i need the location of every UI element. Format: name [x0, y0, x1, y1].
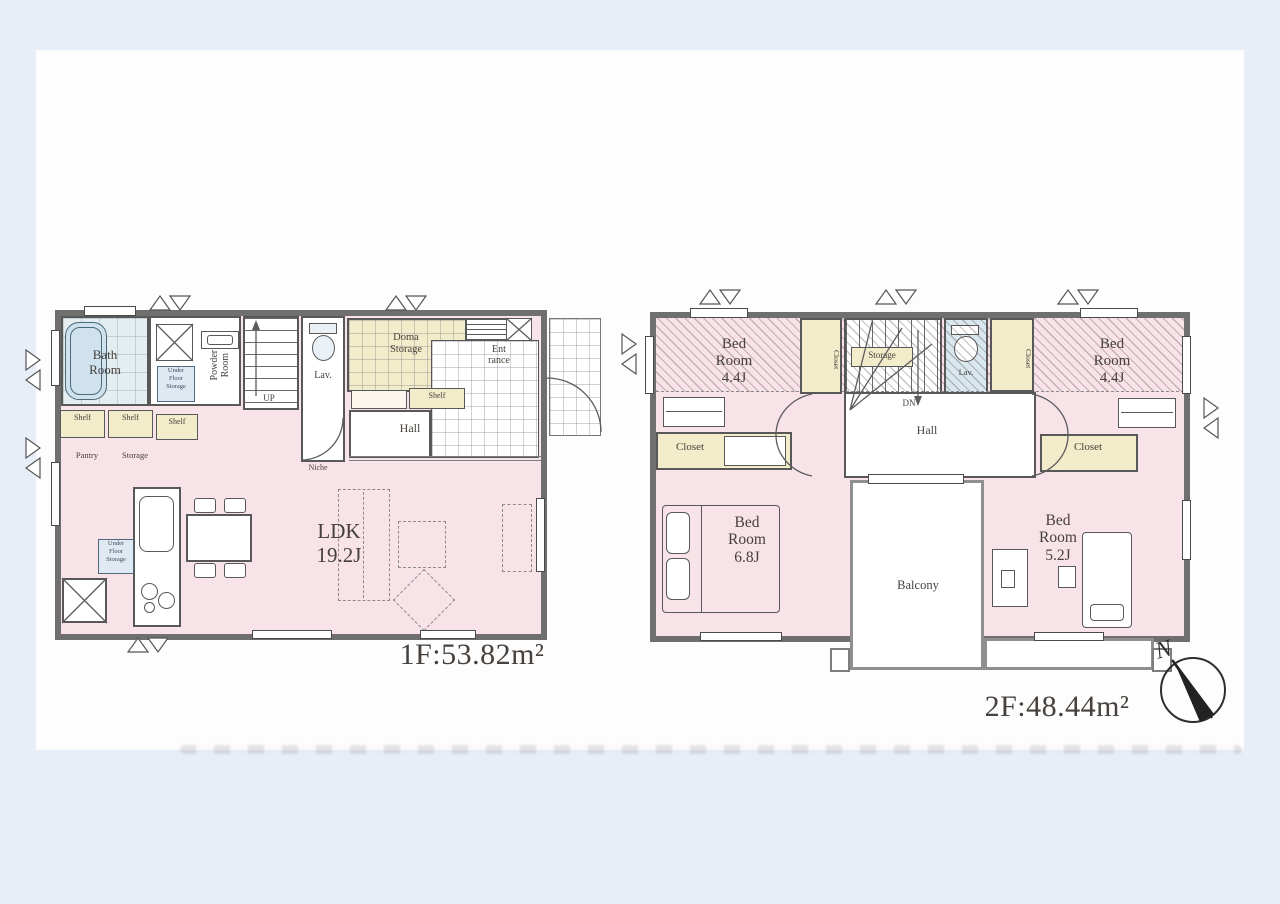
- stove-burner-1: [141, 583, 158, 600]
- shelf-box-2: Shelf: [108, 410, 153, 438]
- balcony-tab-left: [830, 648, 850, 672]
- cabinet-bedroom-tr: [1118, 398, 1176, 428]
- shoe-x-box: [506, 318, 532, 341]
- closet-room-left-label: Closet: [662, 441, 718, 453]
- side-table-br: [1058, 566, 1076, 588]
- desk-monitor: [1001, 570, 1015, 588]
- shelf-box-1: Shelf: [60, 410, 105, 438]
- pillow-2: [666, 558, 690, 600]
- lav-label-1f: Lav.: [303, 370, 343, 381]
- floor1-area-label: 1F:53.82m²: [382, 638, 562, 672]
- low-table-outline: [398, 521, 446, 568]
- balcony-deep: [850, 480, 984, 670]
- bath-room-label: Bath Room: [75, 348, 135, 377]
- balcony-strip: [984, 638, 1154, 670]
- window-1f-left-ldk: [51, 462, 60, 526]
- bedroom-tl-label: Bed Room 4.4J: [694, 336, 774, 386]
- porch: [549, 318, 601, 436]
- ldk-label: LDK 19.2J: [296, 520, 382, 567]
- hall-2f-label: Hall: [902, 424, 952, 437]
- corner-x-box: [62, 578, 107, 623]
- powder-room-label: Powder Room: [209, 335, 231, 395]
- bed-divider-line: [701, 506, 702, 612]
- closet-strip-right: Closet: [990, 318, 1034, 392]
- up-label: UP: [251, 393, 287, 403]
- under-floor-storage-powder: Under Floor Storage: [157, 366, 195, 402]
- toilet-tank-1f: [309, 323, 337, 334]
- balcony-label: Balcony: [886, 578, 950, 592]
- window-2f-bottom-br: [1034, 632, 1104, 641]
- sliding-door-hall-balcony: [868, 474, 964, 484]
- window-2f-left-tl: [645, 336, 654, 394]
- floor2-area-label: 2F:48.44m²: [962, 690, 1152, 724]
- pantry-label: Pantry: [66, 451, 108, 461]
- dining-table: [186, 514, 252, 562]
- tv-board-outline: [502, 504, 532, 572]
- shelf-label-1: Shelf: [61, 414, 104, 423]
- window-1f-bottom-1: [252, 630, 332, 639]
- cabinet-bedroom-tl: [663, 397, 725, 427]
- dining-chair-4: [224, 563, 246, 578]
- entrance-label: Ent rance: [462, 344, 536, 366]
- window-2f-top-left: [690, 308, 748, 318]
- niche-label: Niche: [296, 464, 340, 473]
- window-2f-right-br: [1182, 500, 1191, 560]
- scan-noise-streak: [180, 745, 1242, 754]
- balcony-tab-right: [1152, 648, 1172, 672]
- lav-label-2f: Lav.: [946, 368, 986, 378]
- bedroom-bl-label: Bed Room 6.8J: [708, 514, 786, 566]
- dining-chair-2: [224, 498, 246, 513]
- hall-step-line: [349, 456, 541, 461]
- shelf-label-3: Shelf: [157, 418, 197, 427]
- stove-burner-2: [158, 592, 175, 609]
- toilet-bowl-2f: [954, 336, 978, 362]
- bedroom-tr-label: Bed Room 4.4J: [1070, 336, 1154, 386]
- dining-chair-3: [194, 563, 216, 578]
- window-1f-left-bath: [51, 330, 60, 386]
- doma-storage-label: Doma Storage: [368, 332, 444, 356]
- window-2f-top-right: [1080, 308, 1138, 318]
- kitchen-sink: [139, 496, 174, 552]
- toilet-bowl-1f: [312, 335, 335, 361]
- cabinet-tr-line: [1121, 412, 1173, 413]
- washing-machine-pan: [156, 324, 193, 361]
- closet-room-right-label: Closet: [1056, 441, 1120, 453]
- window-2f-bottom-bl: [700, 632, 782, 641]
- dn-label: DN: [896, 398, 922, 408]
- window-1f-top-bath: [84, 306, 136, 316]
- under-floor-storage-kitchen: Under Floor Storage: [98, 539, 134, 574]
- window-2f-right-tr: [1182, 336, 1191, 394]
- dining-chair-1: [194, 498, 216, 513]
- shelf-under-doma-empty: [351, 390, 407, 409]
- storage-label-1f: Storage: [110, 451, 160, 461]
- stove-burner-3: [144, 602, 155, 613]
- shelf-label-2: Shelf: [109, 414, 152, 423]
- toilet-tank-2f: [951, 325, 979, 335]
- hall-1f-label: Hall: [385, 422, 435, 435]
- window-1f-right-ldk: [536, 498, 545, 572]
- shelf-box-3: Shelf: [156, 414, 198, 440]
- closet-left-inner: [724, 436, 786, 466]
- shelf-under-doma: Shelf: [409, 388, 465, 409]
- shelf-label-d: Shelf: [410, 392, 464, 401]
- pillow-br: [1090, 604, 1124, 621]
- pillow-1: [666, 512, 690, 554]
- cabinet-tl-line: [666, 411, 722, 412]
- stair-storage-box: Storage: [851, 347, 913, 367]
- closet-strip-left: Closet: [800, 318, 842, 394]
- stair-storage-label: Storage: [852, 350, 912, 360]
- bedroom-br-label: Bed Room 5.2J: [1022, 512, 1094, 564]
